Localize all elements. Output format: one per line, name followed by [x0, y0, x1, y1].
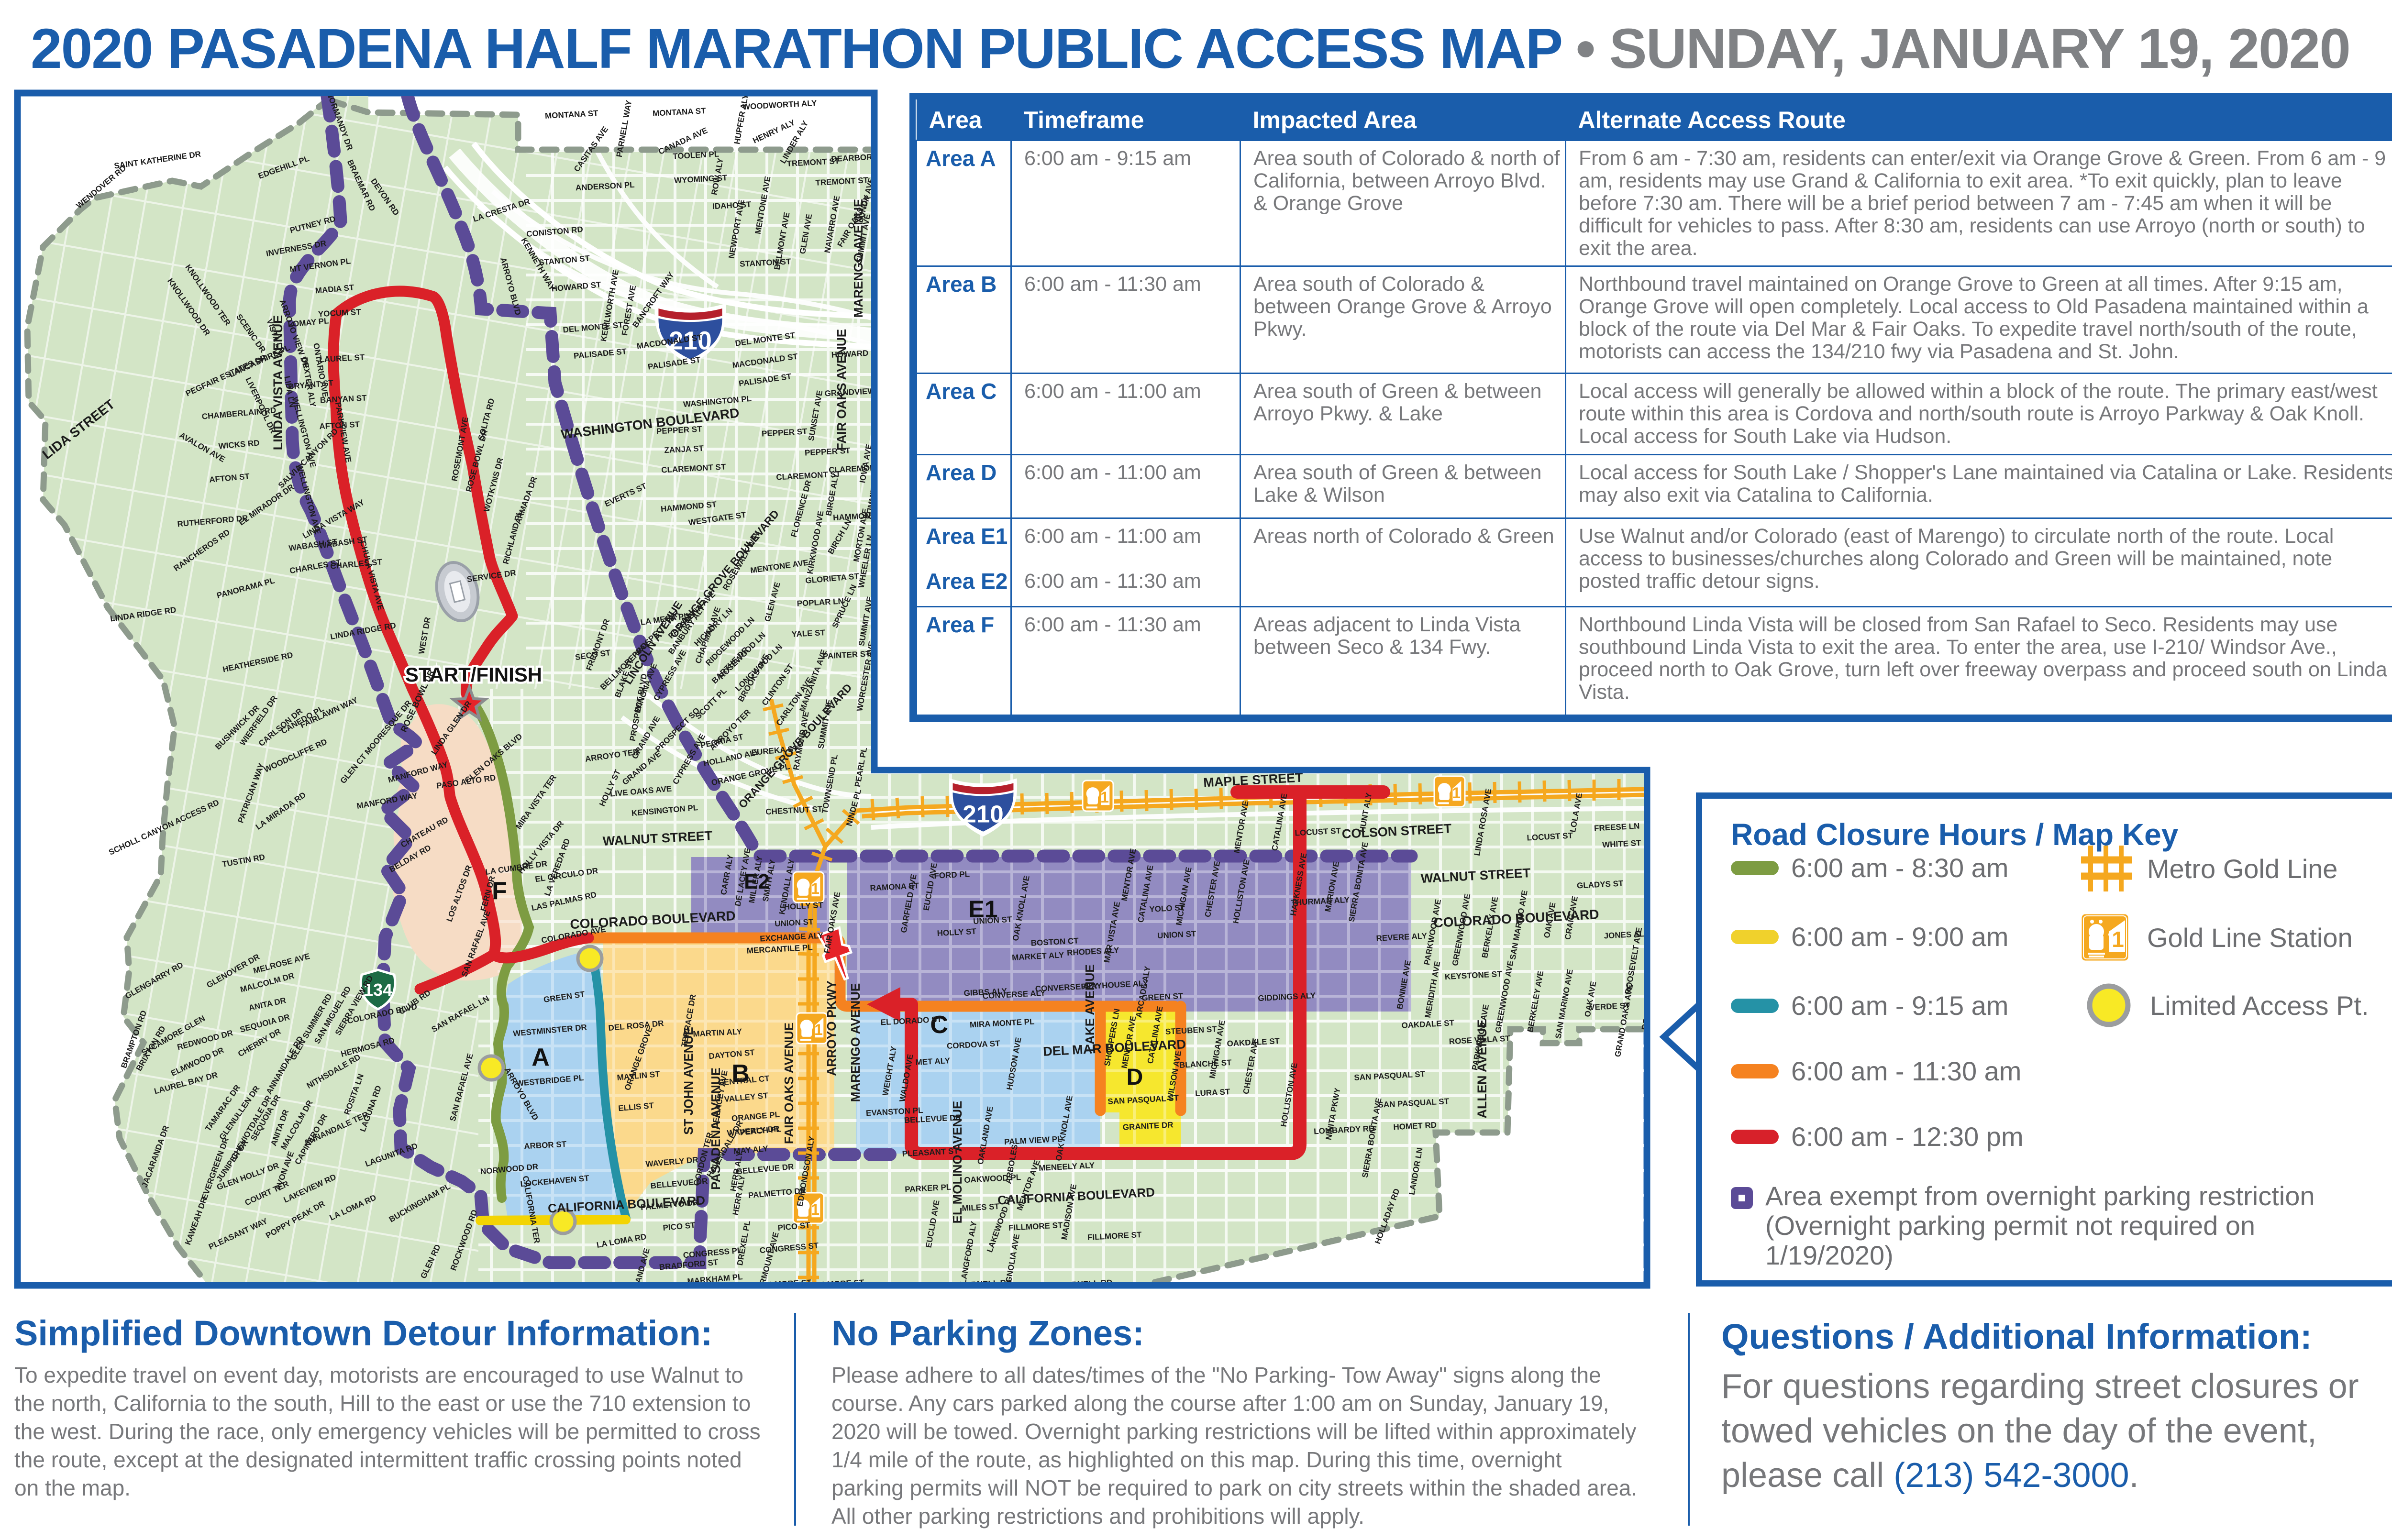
svg-text:LINDA VISTA AVENUE: LINDA VISTA AVENUE: [271, 315, 285, 451]
svg-text:ALLEN AVENUE: ALLEN AVENUE: [1475, 1019, 1489, 1118]
svg-text:ST JOHN AVENUE: ST JOHN AVENUE: [681, 1027, 696, 1134]
svg-text:BELLEFONTAINE ST: BELLEFONTAINE ST: [620, 1290, 700, 1307]
svg-text:1: 1: [2112, 927, 2124, 952]
svg-text:210: 210: [963, 800, 1003, 827]
svg-text:1: 1: [1452, 784, 1461, 802]
svg-text:1: 1: [811, 1201, 819, 1218]
svg-text:1: 1: [1100, 789, 1109, 806]
svg-text:FAIR OAKS AVENUE: FAIR OAKS AVENUE: [834, 329, 849, 451]
svg-text:DALE ST: DALE ST: [1083, 1298, 1118, 1309]
svg-text:FAIR OAKS AVENUE: FAIR OAKS AVENUE: [782, 1023, 796, 1144]
svg-text:LURA ST: LURA ST: [1195, 1087, 1231, 1098]
svg-text:FORD PL: FORD PL: [934, 869, 970, 880]
svg-text:A: A: [532, 1044, 550, 1071]
svg-text:MET ALY: MET ALY: [915, 1056, 951, 1067]
svg-text:LAKE AVENUE: LAKE AVENUE: [1083, 964, 1097, 1052]
svg-text:ARROYO PKWY: ARROYO PKWY: [824, 980, 839, 1076]
svg-text:1: 1: [811, 880, 819, 897]
svg-text:1: 1: [814, 1021, 823, 1038]
svg-text:MARENGO AVENUE: MARENGO AVENUE: [851, 199, 865, 318]
svg-text:PASADENA AVENUE: PASADENA AVENUE: [709, 1067, 723, 1190]
svg-text:YALE ST: YALE ST: [791, 628, 826, 639]
svg-text:MARENGO AVENUE: MARENGO AVENUE: [848, 983, 863, 1102]
svg-text:EL MOLINO AVENUE: EL MOLINO AVENUE: [950, 1101, 964, 1224]
svg-text:D: D: [1127, 1065, 1143, 1090]
